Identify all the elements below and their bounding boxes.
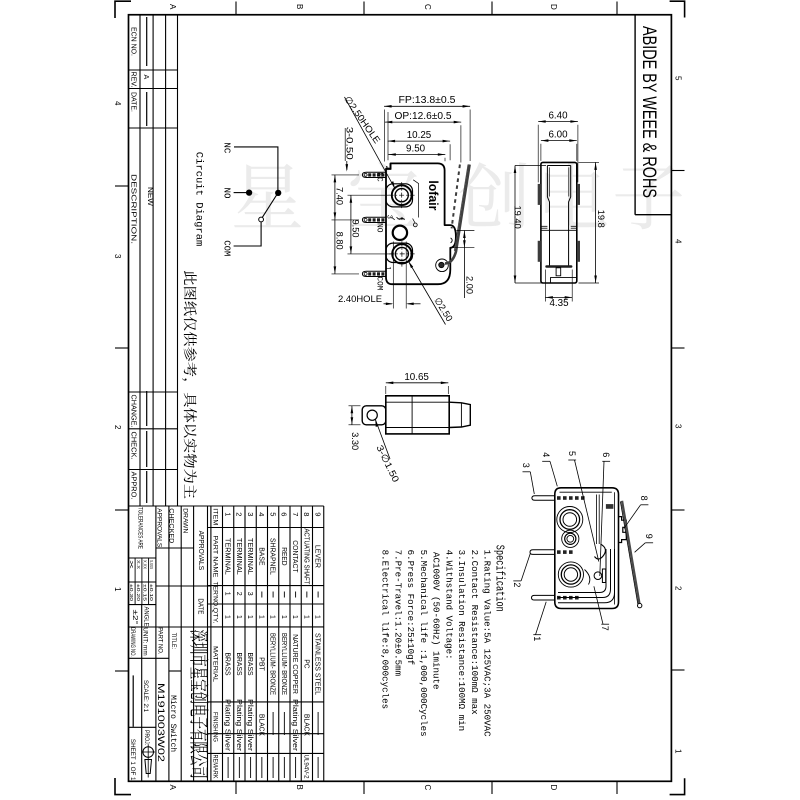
svg-text:PART NAME: PART NAME: [212, 535, 219, 577]
svg-text:6.40: 6.40: [548, 110, 568, 121]
svg-text:TER'NO.: TER'NO.: [212, 582, 219, 608]
svg-text:TERMINAL: TERMINAL: [235, 538, 242, 575]
svg-text:Plating Silver: Plating Silver: [291, 699, 298, 752]
svg-text:±2°: ±2°: [131, 610, 140, 625]
svg-text:5: 5: [268, 512, 277, 516]
svg-text:NO: NO: [222, 188, 233, 199]
svg-text:1: 1: [246, 615, 253, 619]
svg-text:NATURE COPPER: NATURE COPPER: [291, 634, 298, 694]
svg-text:4: 4: [674, 239, 683, 244]
svg-text:8: 8: [302, 512, 311, 516]
svg-text:PART NO.: PART NO.: [157, 627, 164, 655]
svg-text:3: 3: [113, 254, 122, 259]
svg-text:X.X: X.X: [136, 560, 141, 569]
svg-text:ITEM: ITEM: [212, 508, 219, 525]
svg-text:7: 7: [291, 512, 300, 516]
svg-text:7.Pre-Travel:1.20±0.5mm: 7.Pre-Travel:1.20±0.5mm: [393, 550, 404, 677]
svg-text:FP:13.8±0.5: FP:13.8±0.5: [399, 95, 457, 106]
svg-text:1: 1: [291, 615, 298, 619]
svg-text:±0.15: ±0.15: [143, 584, 148, 602]
svg-text:Circuit Diagram: Circuit Diagram: [193, 152, 205, 247]
svg-text:PROJ:: PROJ:: [143, 730, 150, 745]
svg-text:ABIDE BY WEEE & ROHS: ABIDE BY WEEE & ROHS: [638, 26, 659, 198]
svg-text:5: 5: [674, 76, 683, 81]
svg-text:DESCRIPTION.: DESCRIPTION.: [130, 174, 139, 244]
svg-text:4.Withstand Voltage:: 4.Withstand Voltage:: [444, 550, 455, 660]
svg-text:CHANGE.: CHANGE.: [130, 395, 139, 428]
svg-text:9: 9: [313, 512, 322, 516]
svg-text:3.30: 3.30: [350, 432, 360, 450]
svg-text:APPROVALS: APPROVALS: [156, 508, 163, 548]
svg-text:3: 3: [385, 215, 392, 219]
svg-text:LEVER: LEVER: [314, 545, 321, 568]
svg-text:1: 1: [384, 266, 391, 270]
svg-text:3.Insulation Resistance:100MΩ: 3.Insulation Resistance:100MΩ min: [456, 550, 467, 732]
svg-text:9.50: 9.50: [406, 144, 426, 155]
svg-text:BLACK: BLACK: [257, 714, 264, 736]
svg-text:8.80: 8.80: [335, 232, 345, 250]
svg-text:1: 1: [314, 615, 321, 619]
svg-text:BRASS: BRASS: [235, 653, 242, 676]
svg-text:1: 1: [280, 615, 287, 619]
svg-text:NO: NO: [375, 223, 384, 233]
svg-text:8.Electrical life:8,000cycles: 8.Electrical life:8,000cycles: [380, 550, 391, 710]
svg-text:Specification: Specification: [493, 545, 507, 612]
svg-text:NC: NC: [375, 172, 384, 182]
svg-text:8: 8: [639, 496, 649, 501]
svg-text:1.Rating Value:5A 125VAC;3A 25: 1.Rating Value:5A 125VAC;3A 250VAC: [482, 550, 493, 737]
svg-text:AC1000V (50-60Hz) 1minute: AC1000V (50-60Hz) 1minute: [431, 552, 442, 690]
svg-text:4: 4: [541, 452, 551, 457]
svg-text:2.Contact Resistance:100mΩ max: 2.Contact Resistance:100mΩ max: [469, 550, 480, 715]
svg-text:DATE.: DATE.: [130, 92, 139, 112]
svg-text:1: 1: [532, 636, 542, 641]
svg-text:2: 2: [113, 425, 122, 430]
svg-text:COM: COM: [375, 276, 384, 290]
svg-text:lofair: lofair: [426, 180, 441, 210]
svg-text:3: 3: [521, 463, 531, 468]
svg-text:BERYLLIUM- BRONZE: BERYLLIUM- BRONZE: [269, 633, 276, 695]
svg-text:6: 6: [601, 452, 611, 457]
svg-text:M191003W02: M191003W02: [156, 683, 166, 762]
svg-text:9.50: 9.50: [351, 220, 361, 238]
svg-text:7.40: 7.40: [335, 187, 345, 205]
svg-text:TITLE:: TITLE:: [170, 633, 177, 650]
svg-text:1: 1: [269, 615, 276, 619]
svg-text:DRAWING NO.: DRAWING NO.: [129, 627, 136, 657]
svg-text:1: 1: [674, 749, 683, 754]
svg-text:9: 9: [644, 534, 654, 539]
svg-text:1: 1: [257, 615, 264, 619]
svg-text:±0.10: ±0.10: [149, 584, 154, 602]
svg-text:ECN NO.: ECN NO.: [130, 27, 139, 56]
svg-text:BASE: BASE: [257, 547, 264, 566]
svg-text:BRASS: BRASS: [246, 653, 253, 676]
svg-text:ACTUATING SHAFT: ACTUATING SHAFT: [302, 528, 309, 585]
svg-text:4.35: 4.35: [549, 298, 569, 309]
svg-text:DRAWN: DRAWN: [182, 508, 189, 533]
svg-text:3-0.50: 3-0.50: [345, 127, 355, 160]
svg-text:BLACK: BLACK: [302, 714, 309, 736]
svg-text:Plating Silver: Plating Silver: [224, 699, 231, 752]
svg-text:Plating Silver: Plating Silver: [246, 699, 253, 752]
svg-text:A: A: [168, 785, 177, 791]
svg-text:CONTACT: CONTACT: [291, 540, 298, 573]
svg-text:10.25: 10.25: [407, 130, 432, 141]
svg-text:2: 2: [512, 582, 522, 587]
svg-text:REMARK: REMARK: [212, 755, 219, 779]
svg-text:NC: NC: [222, 142, 233, 153]
svg-text:5.Mechanical life :1,000,000Cy: 5.Mechanical life :1,000,000Cycles: [418, 550, 429, 737]
svg-text:CHECK.: CHECK.: [130, 432, 139, 460]
svg-text:COM: COM: [222, 240, 233, 256]
svg-text:REED: REED: [280, 547, 287, 565]
svg-text:APPROVALS: APPROVALS: [197, 531, 204, 571]
svg-text:UNIT: mm: UNIT: mm: [141, 627, 148, 656]
svg-text:MATERIAL: MATERIAL: [212, 646, 219, 682]
svg-text:D: D: [549, 785, 558, 791]
svg-text:X.XX: X.XX: [143, 560, 148, 569]
svg-text:BRASS: BRASS: [224, 653, 231, 676]
svg-text:SCALE: 2:1: SCALE: 2:1: [142, 680, 149, 712]
svg-text:C: C: [423, 785, 432, 791]
svg-text:Plating Silver: Plating Silver: [235, 699, 242, 752]
svg-text:2: 2: [235, 592, 242, 596]
svg-text:1: 1: [235, 615, 242, 619]
svg-text:2: 2: [235, 512, 244, 516]
svg-text:19.8: 19.8: [596, 210, 606, 228]
svg-text:3: 3: [674, 424, 683, 429]
svg-text:10.65: 10.65: [404, 372, 429, 383]
svg-text:3: 3: [246, 592, 253, 596]
svg-text:TERMINAL: TERMINAL: [224, 538, 231, 575]
svg-text:B: B: [295, 4, 304, 9]
svg-text:C: C: [423, 4, 432, 10]
svg-text:APPRO.: APPRO.: [130, 472, 139, 500]
svg-text:1: 1: [113, 587, 122, 592]
svg-text:4: 4: [257, 512, 266, 516]
svg-text:UL94V-2: UL94V-2: [303, 755, 310, 779]
svg-text:6.Press Force:25±10gf: 6.Press Force:25±10gf: [405, 550, 416, 666]
svg-text:NEW: NEW: [146, 187, 153, 206]
svg-text:TERMINAL: TERMINAL: [246, 538, 253, 575]
svg-text:CHECKED: CHECKED: [167, 508, 174, 543]
svg-text:DATE: DATE: [196, 598, 203, 614]
svg-text:2.40HOLE: 2.40HOLE: [338, 294, 382, 304]
svg-text:ANGLE: ANGLE: [143, 607, 150, 627]
svg-text:SHRAPNEL: SHRAPNEL: [269, 538, 276, 575]
svg-text:±0.30: ±0.30: [129, 584, 134, 602]
svg-text:3: 3: [246, 512, 255, 516]
svg-text:6: 6: [280, 512, 289, 516]
svg-text:1: 1: [224, 615, 231, 619]
svg-text:FINISHING: FINISHING: [212, 712, 219, 742]
svg-text:2: 2: [674, 586, 683, 591]
svg-text:6.00: 6.00: [548, 130, 568, 141]
svg-text:4: 4: [113, 101, 122, 106]
svg-text:QTY.: QTY.: [212, 608, 219, 624]
svg-text:X: X: [129, 560, 134, 569]
svg-text:STAINLESS STEEL: STAINLESS STEEL: [314, 633, 321, 695]
svg-text:2: 2: [384, 166, 391, 170]
svg-text:X.XXX: X.XXX: [149, 560, 154, 569]
svg-text:A: A: [142, 75, 151, 80]
svg-text:OP:12.6±0.5: OP:12.6±0.5: [395, 111, 453, 122]
svg-text:2.00: 2.00: [464, 276, 474, 294]
svg-text:Micro Switch: Micro Switch: [168, 695, 178, 752]
svg-text:1: 1: [302, 615, 309, 619]
svg-text:PBT: PBT: [257, 657, 264, 672]
svg-text:REV.: REV.: [130, 72, 139, 88]
svg-text:PC: PC: [302, 659, 309, 668]
svg-text:TOLERANCES ARE: TOLERANCES ARE: [137, 507, 144, 549]
svg-text:19.40: 19.40: [512, 206, 522, 229]
svg-text:A: A: [168, 4, 177, 10]
svg-text:1: 1: [224, 592, 231, 596]
svg-text:1: 1: [223, 512, 232, 516]
svg-text:BERYLLIUM- BRONZE: BERYLLIUM- BRONZE: [280, 633, 287, 695]
svg-text:D: D: [549, 4, 558, 10]
svg-text:5: 5: [567, 451, 577, 456]
svg-text:SHEET 1 OF 1: SHEET 1 OF 1: [129, 739, 136, 781]
svg-text:B: B: [295, 785, 304, 790]
svg-text:±0.20: ±0.20: [136, 584, 141, 602]
svg-text:7: 7: [600, 626, 610, 631]
